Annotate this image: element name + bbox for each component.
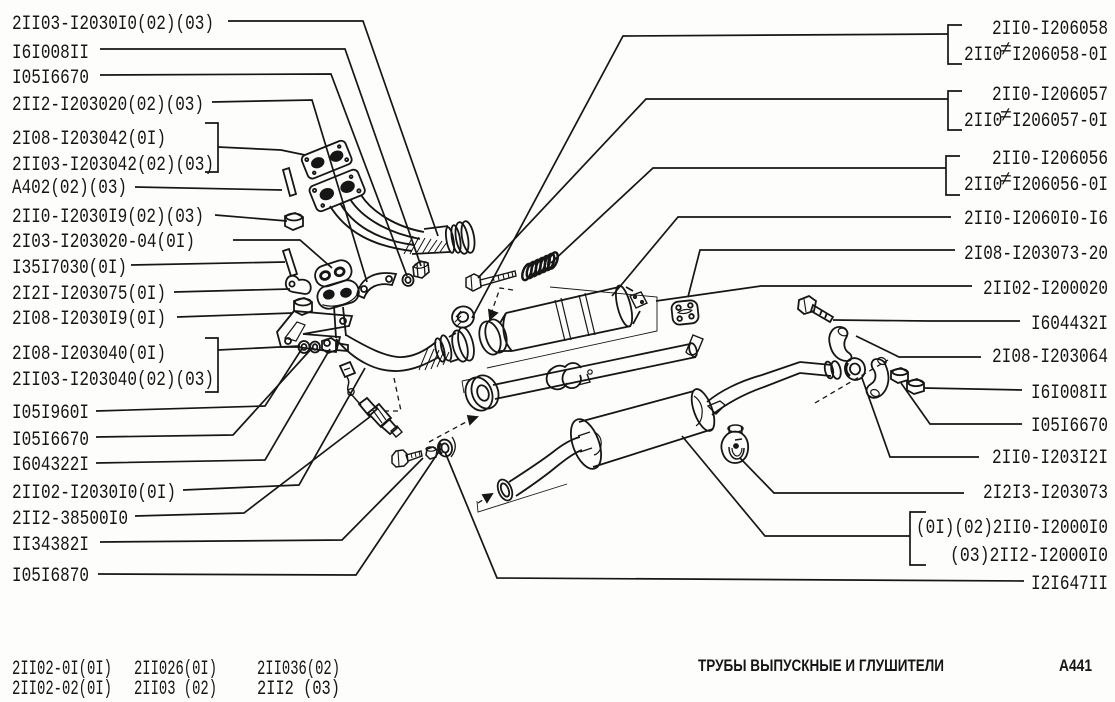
- svg-text:2I08-I203073-20: 2I08-I203073-20: [964, 243, 1108, 266]
- svg-text:2II0 I206057-0I: 2II0 I206057-0I: [964, 110, 1108, 133]
- svg-text:2II0-I2030I9(02)(03): 2II0-I2030I9(02)(03): [12, 206, 204, 229]
- svg-text:(03)2II2-I2000I0: (03)2II2-I2000I0: [950, 545, 1108, 568]
- svg-text:2II03 (02): 2II03 (02): [134, 678, 217, 701]
- svg-text:I2I647II: I2I647II: [1031, 573, 1108, 596]
- svg-text:2II02-I200020: 2II02-I200020: [983, 278, 1108, 301]
- svg-text:ТРУБЫ ВЫПУСКНЫЕ И ГЛУШИТЕЛИ: ТРУБЫ ВЫПУСКНЫЕ И ГЛУШИТЕЛИ: [698, 656, 944, 675]
- svg-text:2II0-I206058: 2II0-I206058: [992, 18, 1108, 41]
- svg-text:2I03-I203020-04(0I): 2I03-I203020-04(0I): [12, 231, 195, 254]
- svg-text:2I08-I2030I9(0I): 2I08-I2030I9(0I): [12, 308, 166, 331]
- svg-text:2I08-I203064: 2I08-I203064: [992, 346, 1108, 369]
- svg-text:(0I)(02)2II0-I2000I0: (0I)(02)2II0-I2000I0: [916, 517, 1108, 540]
- svg-text:I05I6670: I05I6670: [12, 67, 89, 90]
- svg-text:2II0 I206058-0I: 2II0 I206058-0I: [964, 44, 1108, 67]
- svg-text:A441: A441: [1059, 656, 1092, 675]
- svg-text:I05I6670: I05I6670: [12, 429, 89, 452]
- svg-text:I6I008II: I6I008II: [1031, 382, 1108, 405]
- svg-text:2II0-I206057: 2II0-I206057: [992, 84, 1108, 107]
- svg-text:A402(02)(03): A402(02)(03): [12, 177, 127, 200]
- svg-text:I05I960I: I05I960I: [12, 402, 89, 425]
- svg-text:I05I6670: I05I6670: [1031, 415, 1108, 438]
- svg-text:2I2I-I203075(0I): 2I2I-I203075(0I): [12, 283, 166, 306]
- svg-text:I05I6870: I05I6870: [12, 565, 89, 588]
- svg-text:2II02-02(0I): 2II02-02(0I): [12, 678, 112, 701]
- svg-text:2II03-I203040(02)(03): 2II03-I203040(02)(03): [12, 369, 214, 392]
- svg-text:≠: ≠: [1000, 105, 1012, 128]
- svg-text:2I08-I203042(0I): 2I08-I203042(0I): [12, 128, 166, 151]
- svg-text:2II02-I2030I0(0I): 2II02-I2030I0(0I): [12, 482, 176, 505]
- svg-text:2II0-I206056: 2II0-I206056: [992, 148, 1108, 171]
- svg-text:II34382I: II34382I: [12, 534, 89, 557]
- svg-text:2II2-I203020(02)(03): 2II2-I203020(02)(03): [12, 94, 204, 117]
- svg-text:2I2I3-I203073: 2I2I3-I203073: [983, 482, 1108, 505]
- svg-text:≠: ≠: [1000, 39, 1012, 62]
- svg-text:2II03-I203042(02)(03): 2II03-I203042(02)(03): [12, 154, 214, 177]
- svg-text:2II0-I2060I0-I6: 2II0-I2060I0-I6: [964, 208, 1108, 231]
- svg-text:2II03-I2030I0(02)(03): 2II03-I2030I0(02)(03): [12, 13, 214, 36]
- svg-text:I6I008II: I6I008II: [12, 42, 89, 65]
- svg-text:2II0-I203I2I: 2II0-I203I2I: [992, 447, 1108, 470]
- svg-text:2II0 I206056-0I: 2II0 I206056-0I: [964, 174, 1108, 197]
- svg-text:I35I7030(0I): I35I7030(0I): [12, 257, 127, 280]
- svg-text:2II2-38500I0: 2II2-38500I0: [12, 508, 128, 531]
- svg-text:I604432I: I604432I: [1031, 313, 1108, 336]
- svg-text:≠: ≠: [1000, 169, 1012, 192]
- svg-text:2II2 (03): 2II2 (03): [257, 678, 340, 701]
- svg-text:I604322I: I604322I: [12, 454, 89, 477]
- svg-text:2I08-I203040(0I): 2I08-I203040(0I): [12, 343, 166, 366]
